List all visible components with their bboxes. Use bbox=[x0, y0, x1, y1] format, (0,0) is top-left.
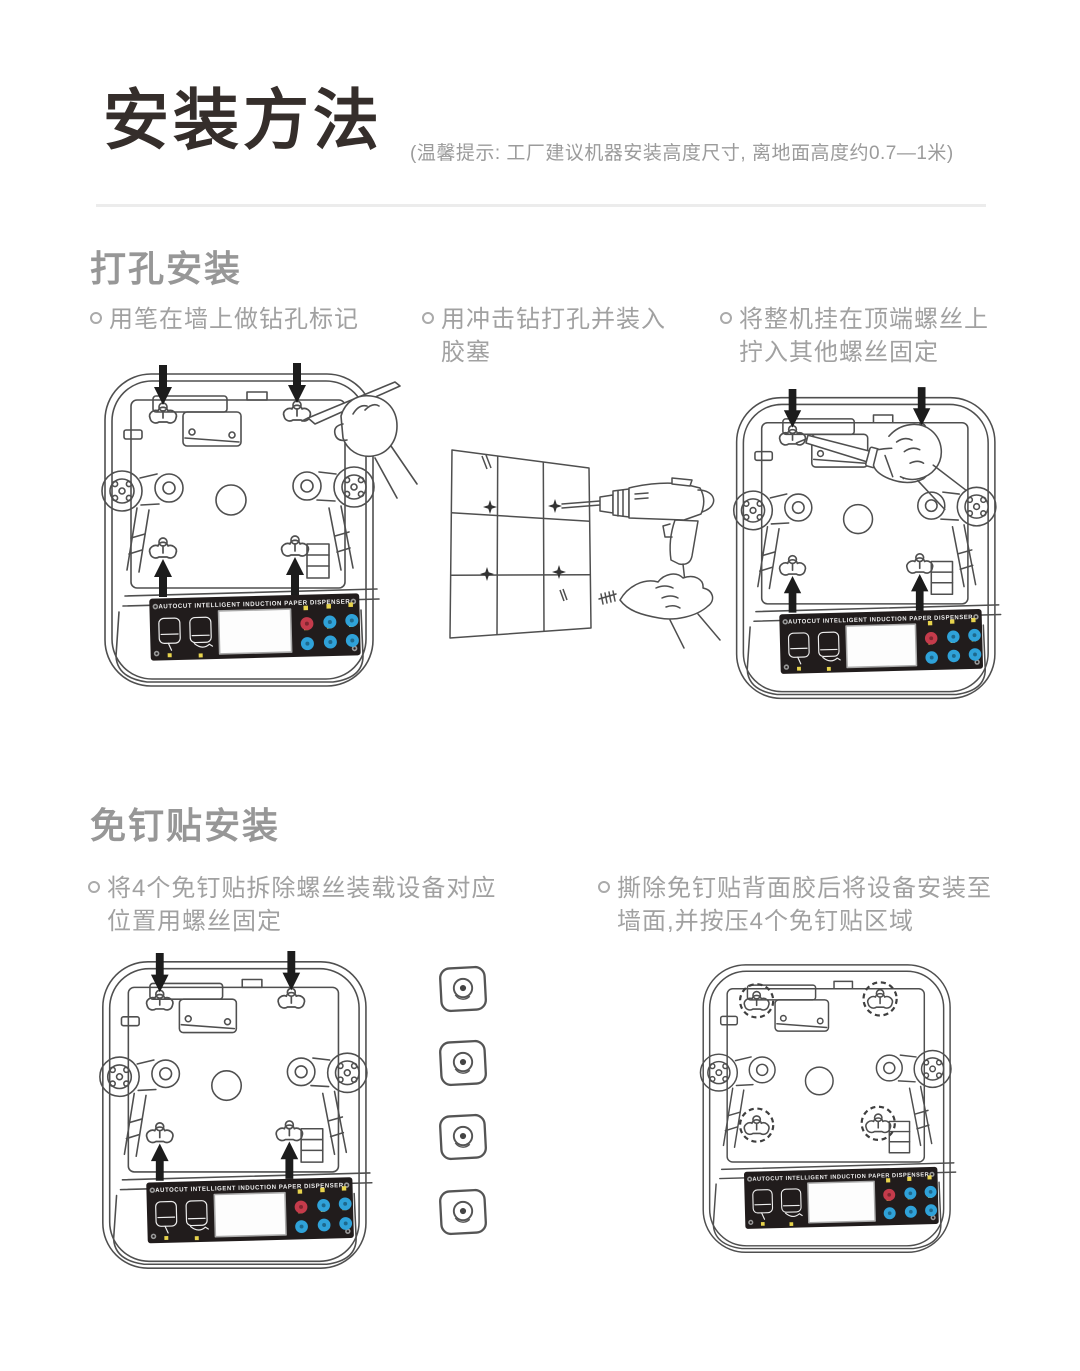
bullet-circle-icon bbox=[422, 312, 434, 324]
step-attach-stickers: 将4个免钉贴拆除螺丝装载设备对应 位置用螺丝固定 bbox=[88, 872, 548, 938]
step-text-line: 用笔在墙上做钻孔标记 bbox=[109, 303, 359, 336]
section-heading-drill-install: 打孔安装 bbox=[90, 240, 242, 292]
step-text-line: 拧入其他螺丝固定 bbox=[739, 336, 989, 369]
wall-drill-illustration bbox=[432, 428, 722, 658]
sticker-icon bbox=[434, 1034, 492, 1092]
divider bbox=[96, 204, 986, 207]
step-hang-machine: 将整机挂在顶端螺丝上 拧入其他螺丝固定 bbox=[720, 303, 1040, 369]
step-text-line: 撕除免钉贴背面胶后将设备安装至 bbox=[617, 872, 992, 905]
bullet-circle-icon bbox=[720, 312, 732, 324]
wall-grid bbox=[450, 450, 591, 638]
step-text-line: 墙面,并按压4个免钉贴区域 bbox=[617, 905, 992, 938]
page-title: 安装方法 bbox=[103, 84, 383, 157]
hand-with-plug-icon bbox=[599, 574, 720, 648]
bullet-circle-icon bbox=[88, 881, 100, 893]
device-screw-fix-illustration: AUTOCUT INTELLIGENT INDUCTION PAPER DISP… bbox=[727, 382, 1045, 715]
drill-marks bbox=[480, 499, 566, 581]
page-note: (温馨提示: 工厂建议机器安装高度尺寸, 离地面高度约0.7—1米) bbox=[410, 138, 954, 165]
step-press-stickers: 撕除免钉贴背面胶后将设备安装至 墙面,并按压4个免钉贴区域 bbox=[598, 872, 1058, 938]
step-text-line: 位置用螺丝固定 bbox=[107, 905, 496, 938]
sticker-icon bbox=[434, 1183, 492, 1241]
electric-drill-icon bbox=[562, 478, 714, 589]
step-text-line: 将4个免钉贴拆除螺丝装载设备对应 bbox=[107, 872, 496, 905]
section-heading-sticker-install: 免钉贴安装 bbox=[90, 797, 280, 849]
step-text-line: 用冲击钻打孔并装入 bbox=[441, 303, 666, 336]
step-text-line: 将整机挂在顶端螺丝上 bbox=[739, 303, 989, 336]
bullet-circle-icon bbox=[598, 881, 610, 893]
device-sticker-positions-illustration: AUTOCUT INTELLIGENT INDUCTION PAPER DISP… bbox=[93, 946, 417, 1285]
installation-guide-page: 安装方法 (温馨提示: 工厂建议机器安装高度尺寸, 离地面高度约0.7—1米) … bbox=[0, 0, 1080, 1371]
device-press-areas-illustration: AUTOCUT INTELLIGENT INDUCTION PAPER DISP… bbox=[694, 950, 998, 1268]
step-drill-holes: 用冲击钻打孔并装入 胶塞 bbox=[422, 303, 702, 369]
device-mark-holes-illustration: AUTOCUT INTELLIGENT INDUCTION PAPER DISP… bbox=[95, 358, 425, 703]
sticker-icon bbox=[434, 1108, 492, 1166]
step-text-line: 胶塞 bbox=[441, 336, 666, 369]
bullet-circle-icon bbox=[90, 312, 102, 324]
sticker-icon bbox=[434, 960, 492, 1018]
step-mark-holes: 用笔在墙上做钻孔标记 bbox=[90, 303, 420, 336]
